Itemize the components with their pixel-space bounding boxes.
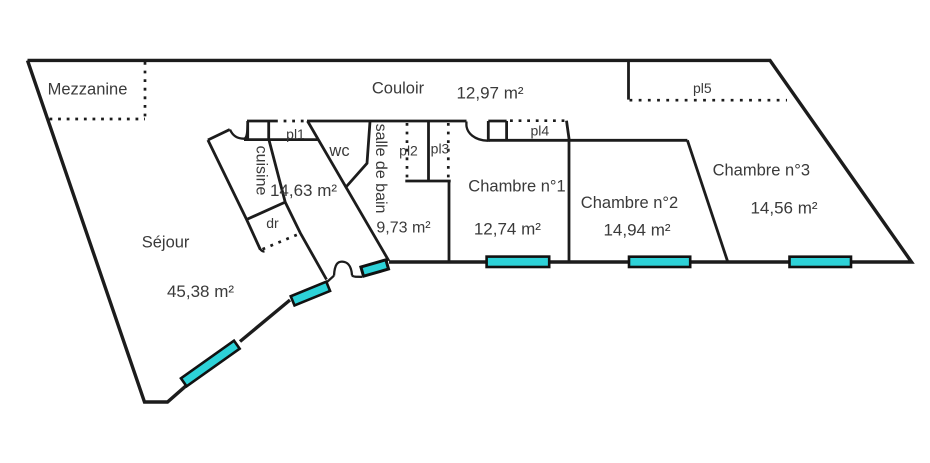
- svg-text:Séjour: Séjour: [142, 234, 190, 252]
- svg-text:45,38 m²: 45,38 m²: [167, 282, 234, 301]
- svg-text:14,56 m²: 14,56 m²: [750, 199, 817, 218]
- svg-text:wc: wc: [328, 142, 349, 160]
- svg-text:dr: dr: [266, 215, 279, 231]
- svg-text:salle de bain: salle de bain: [372, 124, 389, 214]
- svg-text:cuisine: cuisine: [252, 146, 269, 196]
- svg-text:pl2: pl2: [399, 142, 418, 158]
- svg-text:pl3: pl3: [431, 141, 450, 157]
- svg-text:pl4: pl4: [530, 122, 549, 138]
- svg-text:Chambre n°3: Chambre n°3: [713, 162, 810, 180]
- svg-text:Mezzanine: Mezzanine: [48, 81, 128, 99]
- svg-text:12,97 m²: 12,97 m²: [456, 84, 523, 103]
- svg-text:12,74 m²: 12,74 m²: [474, 219, 541, 238]
- svg-text:Chambre n°2: Chambre n°2: [581, 194, 678, 212]
- svg-text:9,73 m²: 9,73 m²: [376, 220, 431, 237]
- svg-text:14,63 m²: 14,63 m²: [270, 181, 337, 200]
- svg-text:pl5: pl5: [693, 80, 712, 96]
- svg-text:Chambre n°1: Chambre n°1: [468, 178, 565, 196]
- svg-text:pl1: pl1: [286, 126, 305, 142]
- svg-text:Couloir: Couloir: [372, 80, 425, 98]
- svg-text:14,94 m²: 14,94 m²: [603, 220, 670, 239]
